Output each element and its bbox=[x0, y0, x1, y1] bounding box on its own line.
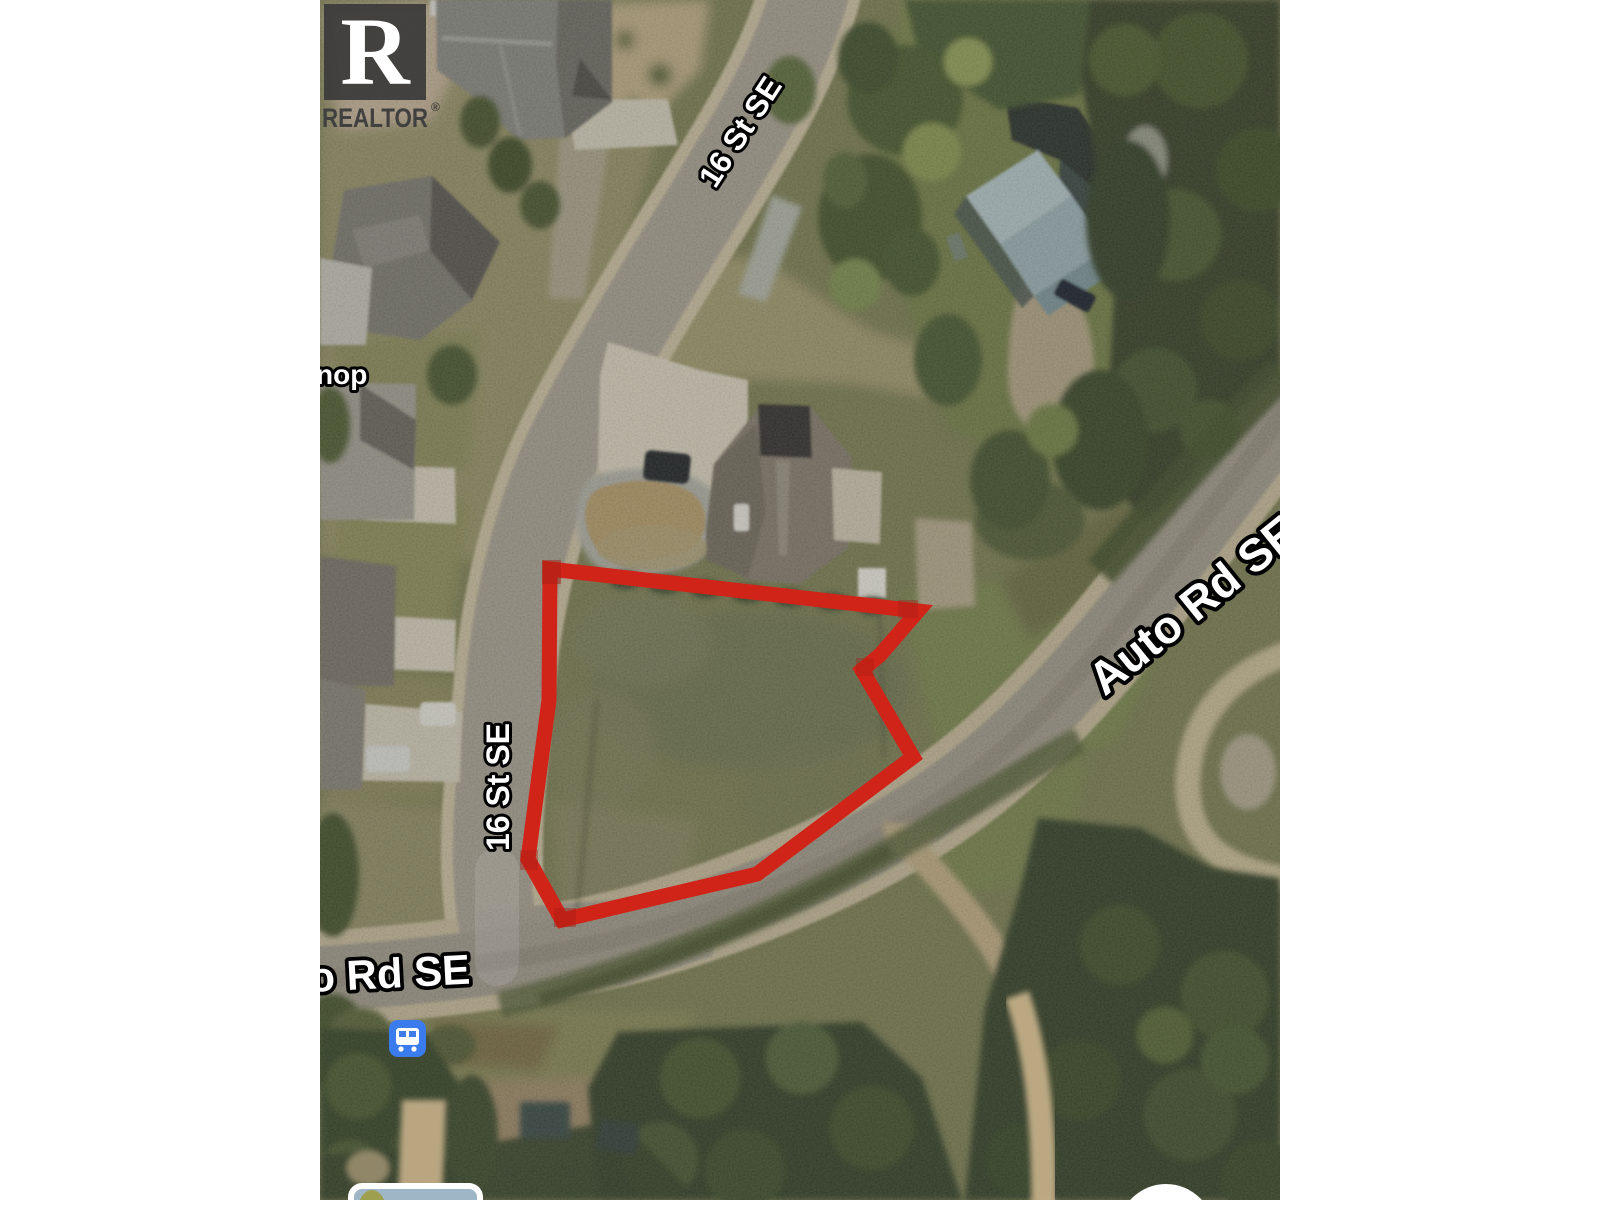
svg-text:REALTOR: REALTOR bbox=[322, 103, 428, 133]
svg-text:16 St SE: 16 St SE bbox=[480, 723, 516, 851]
svg-text:®: ® bbox=[431, 100, 440, 114]
svg-text:nop: nop bbox=[320, 359, 367, 390]
svg-text:o Rd SE: o Rd SE bbox=[320, 946, 471, 1001]
svg-text:R: R bbox=[340, 0, 411, 105]
